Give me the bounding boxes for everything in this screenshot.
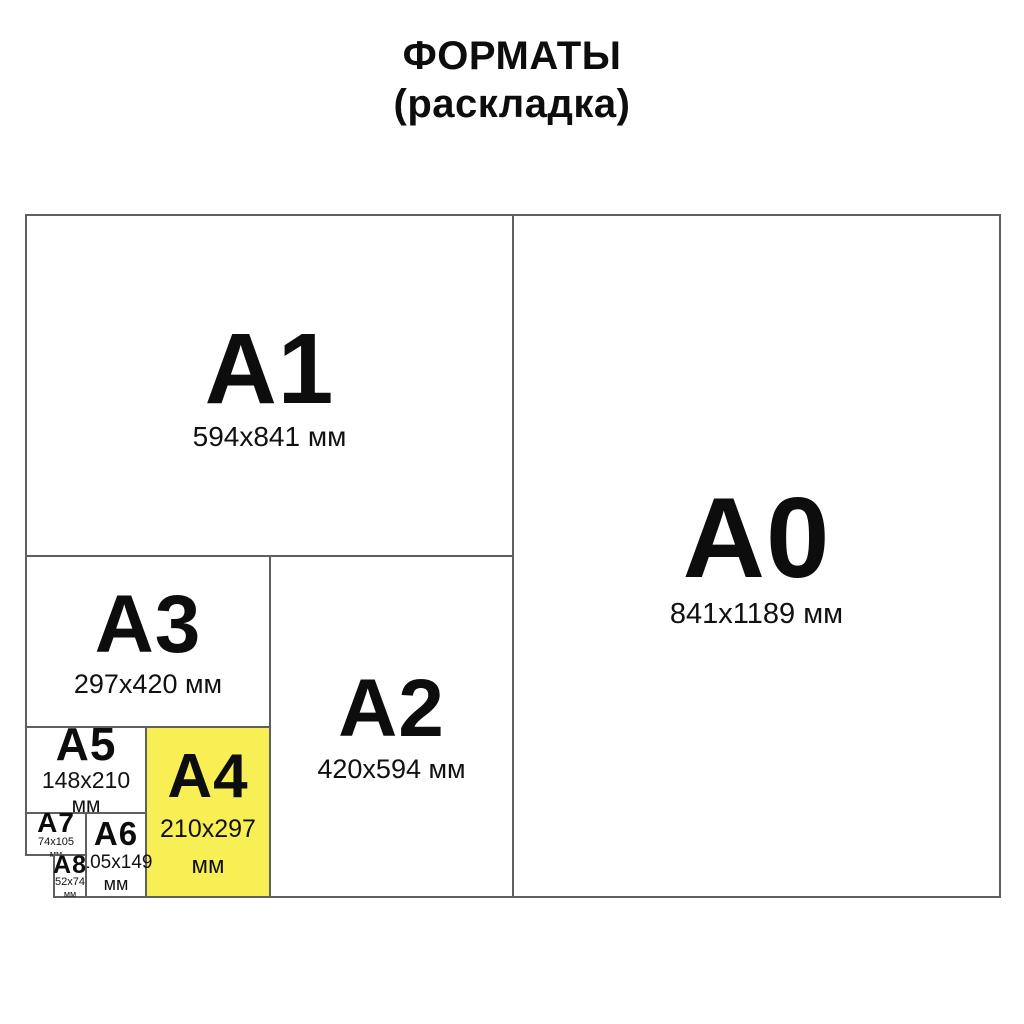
- format-unit-a6: мм: [104, 875, 129, 893]
- format-label-a7: A7: [37, 810, 75, 835]
- paper-formats-diagram: ФОРМАТЫ (раскладка) A1 594x841 мм A0 841…: [0, 0, 1024, 1024]
- diagram-title-line1: ФОРМАТЫ: [0, 32, 1024, 80]
- format-box-a8: A8 52x74 мм: [53, 854, 87, 898]
- format-label-a2: A2: [338, 668, 445, 750]
- format-dims-a8: 52x74: [55, 878, 85, 888]
- format-dims-a1: 594x841 мм: [193, 421, 347, 453]
- format-box-a5: A5 148x210 мм: [25, 726, 147, 814]
- format-box-a7: A7 74x105 мм: [25, 812, 87, 856]
- format-label-a0: A0: [683, 482, 831, 596]
- format-box-a4-highlighted: A4 210x297 мм: [145, 726, 271, 898]
- format-box-a3: A3 297x420 мм: [25, 555, 271, 728]
- format-dims-a5: 148x210: [42, 768, 130, 793]
- format-label-a6: A6: [94, 817, 138, 850]
- format-unit-a8: мм: [64, 890, 76, 898]
- format-box-a0: A0 841x1189 мм: [512, 214, 1001, 898]
- format-dims-a7: 74x105: [38, 838, 74, 848]
- format-label-a3: A3: [95, 584, 202, 666]
- format-label-a5: A5: [56, 724, 117, 764]
- format-dims-a0: 841x1189 мм: [670, 598, 843, 631]
- format-dims-a4: 210x297: [160, 814, 256, 844]
- format-box-a6: A6 105x149 мм: [85, 812, 147, 898]
- format-dims-a2: 420x594 мм: [317, 754, 465, 785]
- format-label-a8: A8: [53, 854, 87, 877]
- diagram-title-line2: (раскладка): [0, 80, 1024, 128]
- diagram-title: ФОРМАТЫ (раскладка): [0, 32, 1024, 128]
- format-unit-a4: мм: [192, 854, 225, 878]
- format-box-a2: A2 420x594 мм: [269, 555, 514, 898]
- format-box-a1: A1 594x841 мм: [25, 214, 514, 557]
- format-dims-a3: 297x420 мм: [74, 669, 222, 700]
- format-label-a1: A1: [205, 319, 335, 419]
- format-dims-a6: 105x149: [80, 852, 153, 874]
- format-label-a4: A4: [167, 746, 248, 808]
